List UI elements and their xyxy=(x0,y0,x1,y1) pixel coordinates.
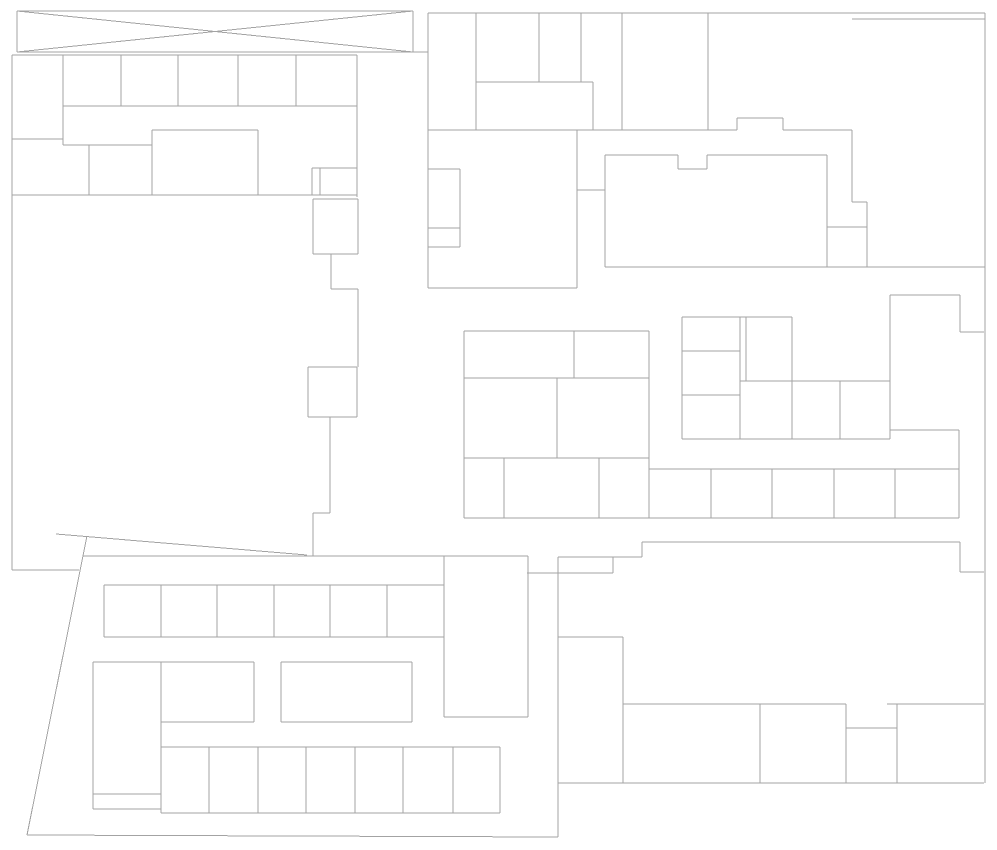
building-top-right xyxy=(605,13,985,783)
floor-plan-canvas xyxy=(0,0,997,850)
building-bottom-right xyxy=(527,542,984,837)
corridor-left xyxy=(308,199,358,556)
floor-plan-page xyxy=(0,0,997,850)
crossed-box-top-left xyxy=(17,11,428,52)
cluster-middle xyxy=(464,295,984,518)
building-top-left xyxy=(12,55,357,570)
building-top-middle xyxy=(428,13,985,288)
building-bottom-left xyxy=(27,534,558,837)
